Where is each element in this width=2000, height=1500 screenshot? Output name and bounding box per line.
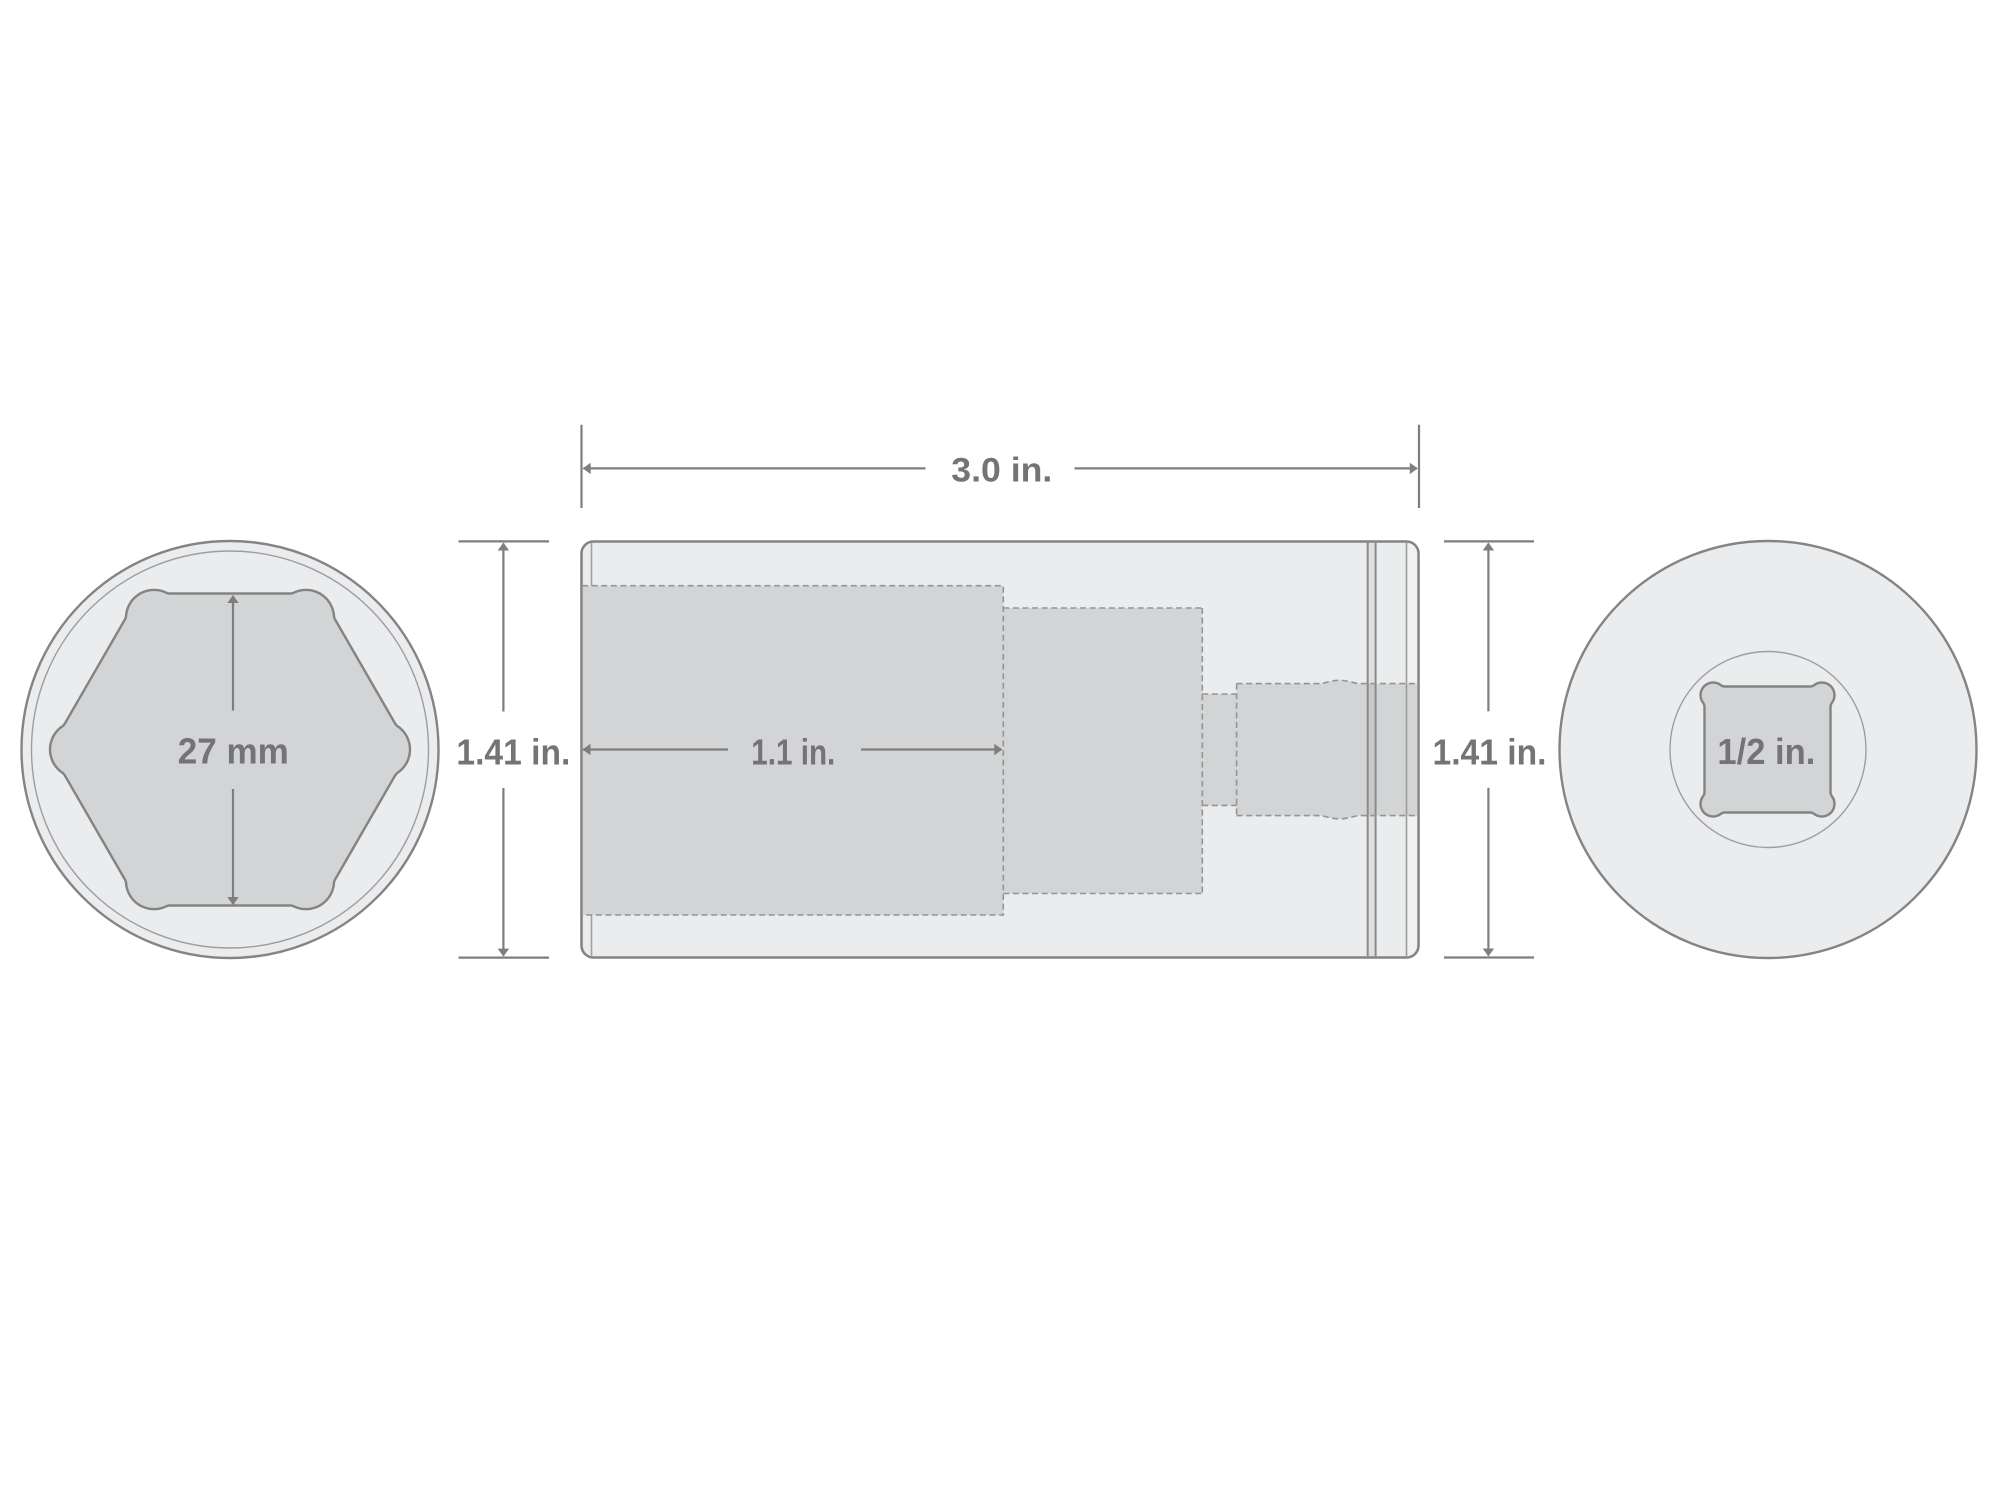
svg-text:27 mm: 27 mm xyxy=(178,731,289,772)
svg-text:1.1 in.: 1.1 in. xyxy=(751,731,835,772)
svg-text:1.41 in.: 1.41 in. xyxy=(456,731,570,772)
svg-text:3.0 in.: 3.0 in. xyxy=(951,452,1052,490)
svg-text:1/2 in.: 1/2 in. xyxy=(1717,731,1815,772)
svg-text:1.41 in.: 1.41 in. xyxy=(1433,731,1547,772)
